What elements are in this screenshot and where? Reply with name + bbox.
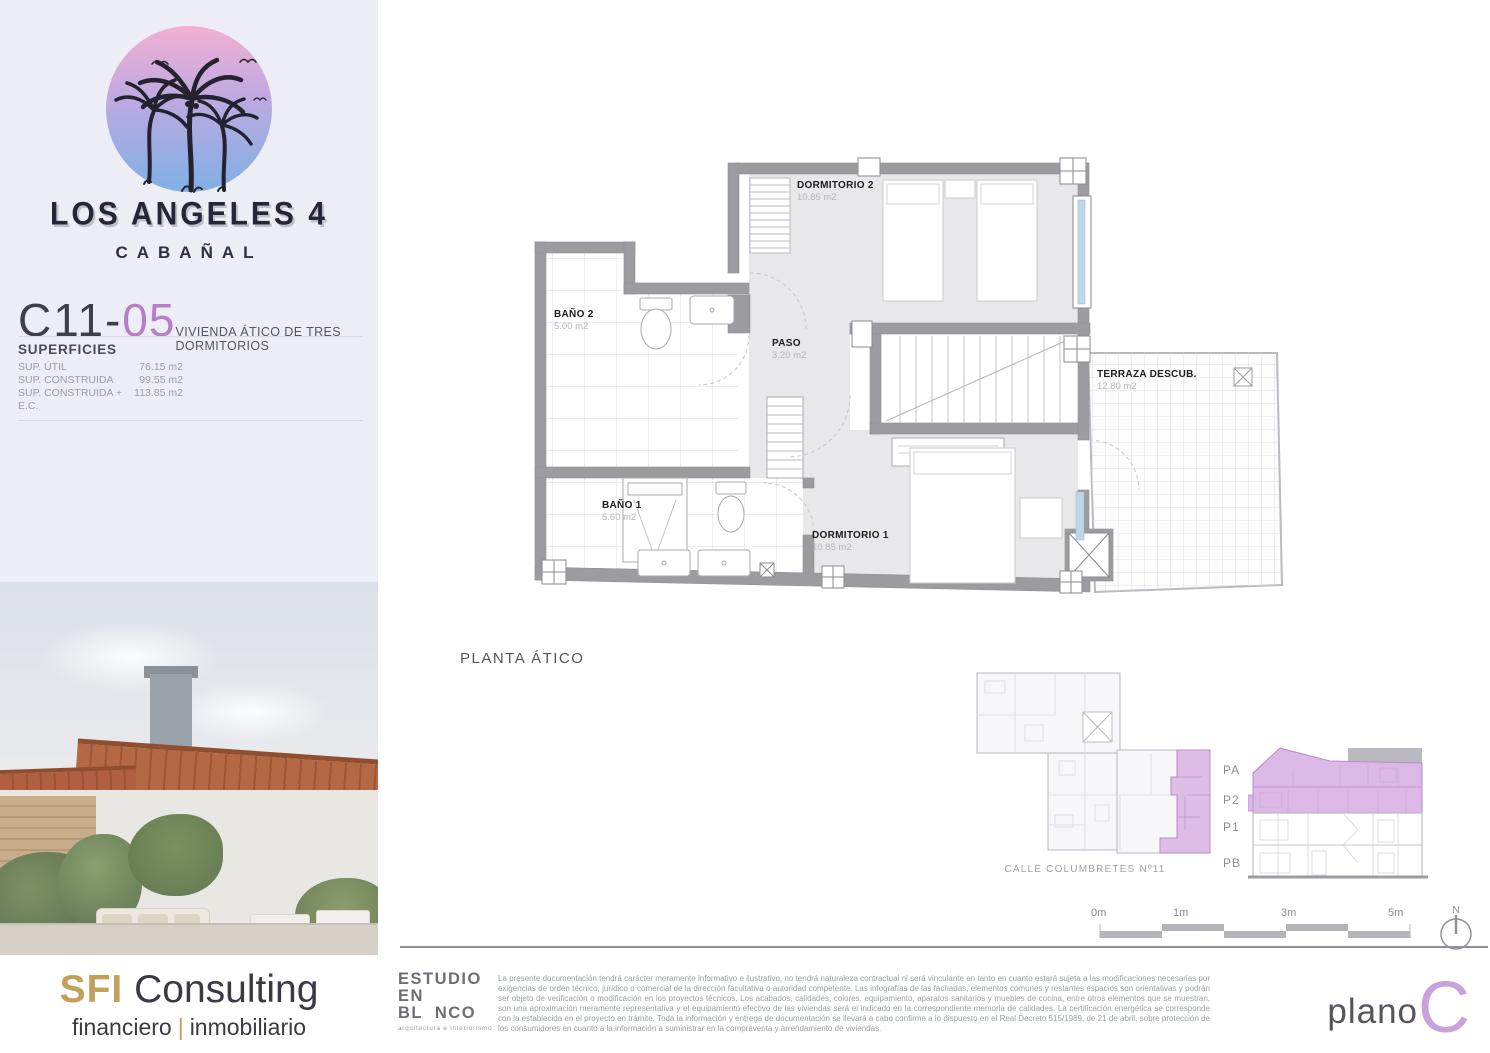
floor-plan: DORMITORIO 2 10.85 m2 BAÑO 2 5.00 m2 PAS… bbox=[520, 130, 1300, 620]
room-area-dormitorio1: 10.85 m2 bbox=[812, 542, 852, 553]
plan-caption: PLANTA ÁTICO bbox=[460, 650, 584, 667]
scale-tick-1: 1m bbox=[1173, 907, 1188, 919]
key-plan-caption: CALLE COLUMBRETES Nº11 bbox=[1004, 864, 1165, 875]
north-label: N bbox=[1452, 905, 1459, 916]
project-location: CABAÑAL bbox=[0, 243, 378, 263]
key-plan: CALLE COLUMBRETES Nº11 bbox=[955, 665, 1220, 880]
unit-code-prefix: C11- bbox=[18, 293, 122, 347]
superficies-row: SUP. CONSTRUIDA + E.C. 113.85 m2 bbox=[18, 387, 183, 413]
agency-name-light: Consulting bbox=[123, 968, 318, 1011]
divider bbox=[18, 420, 363, 421]
room-label-paso: PASO bbox=[772, 338, 801, 349]
agency-name-bold: SFI bbox=[60, 968, 124, 1011]
studio-line-2: EN bbox=[398, 988, 493, 1005]
footer-divider bbox=[400, 946, 1488, 948]
agency-logo: SFI Consulting financiero|inmobiliario bbox=[0, 955, 378, 1053]
floor-label-pb: PB bbox=[1223, 856, 1241, 870]
unit-code-number: 05 bbox=[122, 293, 175, 347]
floor-label-p1: P1 bbox=[1223, 820, 1240, 834]
room-label-dormitorio2: DORMITORIO 2 bbox=[797, 180, 874, 191]
room-label-dormitorio1: DORMITORIO 1 bbox=[812, 530, 889, 541]
room-area-paso: 3.20 m2 bbox=[772, 350, 806, 361]
scale-tick-5: 5m bbox=[1388, 907, 1403, 919]
studio-subtitle: arquitectura e interiorismo bbox=[398, 1025, 493, 1032]
agency-tag-separator: | bbox=[172, 1014, 190, 1040]
terrace-photo bbox=[0, 582, 378, 955]
superficies-value: 76.15 m2 bbox=[139, 361, 183, 374]
room-area-bano2: 5.00 m2 bbox=[554, 321, 588, 332]
superficies-row: SUP. ÚTIL 76.15 m2 bbox=[18, 361, 183, 374]
superficies-label: SUP. CONSTRUIDA + E.C. bbox=[18, 387, 134, 413]
floor-label-p2: P2 bbox=[1223, 793, 1240, 807]
studio-logo: ESTUDIO EN BL NCO arquitectura e interio… bbox=[398, 971, 493, 1032]
brochure-page: LOS ANGELES 4 CABAÑAL C11- 05 VIVIENDA Á… bbox=[0, 0, 1490, 1053]
superficies-row: SUP. CONSTRUIDA 99.55 m2 bbox=[18, 374, 183, 387]
plano-letter: C bbox=[1418, 978, 1470, 1039]
scale-tick-3: 3m bbox=[1281, 907, 1296, 919]
room-label-bano1: BAÑO 1 bbox=[602, 498, 642, 511]
plano-word: plano bbox=[1327, 992, 1418, 1039]
superficies-label: SUP. CONSTRUIDA bbox=[18, 374, 114, 387]
plano-c-logo: plano C bbox=[1300, 978, 1470, 1039]
agency-tag-right: inmobiliario bbox=[190, 1014, 306, 1040]
studio-line-3: BL NCO bbox=[398, 1005, 493, 1022]
palm-sunset-logo bbox=[0, 22, 378, 202]
room-area-bano1: 5.60 m2 bbox=[602, 512, 636, 523]
room-label-bano2: BAÑO 2 bbox=[554, 307, 594, 320]
superficies-label: SUP. ÚTIL bbox=[18, 361, 67, 374]
room-area-terraza: 12.80 m2 bbox=[1097, 381, 1137, 392]
north-arrow-icon: N bbox=[1441, 905, 1471, 949]
superficies-table: SUP. ÚTIL 76.15 m2 SUP. CONSTRUIDA 99.55… bbox=[18, 361, 183, 414]
unit-type: VIVIENDA ÁTICO DE TRES DORMITORIOS bbox=[175, 325, 368, 361]
floor-label-pa: PA bbox=[1223, 763, 1240, 777]
agency-tag-left: financiero bbox=[72, 1014, 172, 1040]
palm-sunset-logo-icon bbox=[94, 22, 284, 197]
superficies-value: 99.55 m2 bbox=[139, 374, 183, 387]
room-label-terraza: TERRAZA DESCUB. bbox=[1097, 369, 1197, 380]
superficies-value: 113.85 m2 bbox=[134, 387, 183, 413]
studio-line-1: ESTUDIO bbox=[398, 971, 493, 988]
stairs-up bbox=[750, 178, 790, 253]
legal-disclaimer: La presente documentación tendrá carácte… bbox=[498, 974, 1210, 1033]
project-name: LOS ANGELES 4 bbox=[0, 197, 378, 234]
superficies-title: SUPERFICIES bbox=[18, 342, 117, 357]
divider bbox=[18, 336, 363, 337]
section-elevation bbox=[1248, 735, 1428, 885]
scale-tick-0: 0m bbox=[1091, 907, 1106, 919]
room-area-dormitorio2: 10.85 m2 bbox=[797, 192, 837, 203]
left-panel: LOS ANGELES 4 CABAÑAL C11- 05 VIVIENDA Á… bbox=[0, 0, 378, 1053]
